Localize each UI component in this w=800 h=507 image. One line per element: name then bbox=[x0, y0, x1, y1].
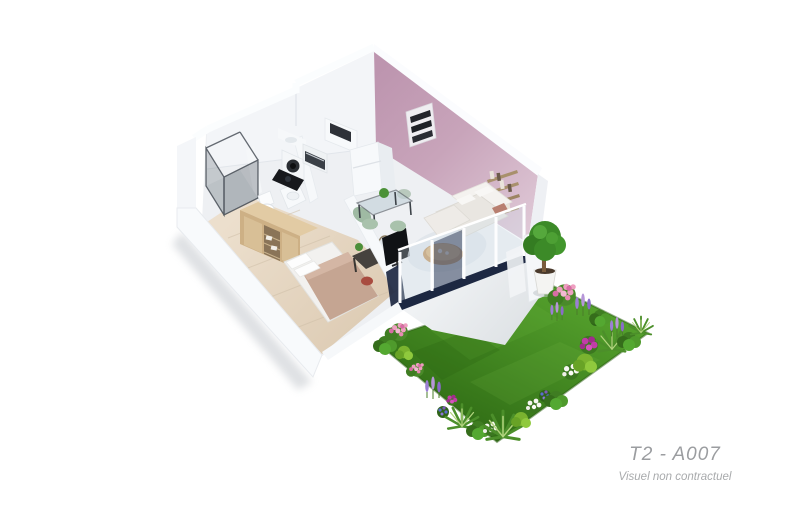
fridge bbox=[350, 142, 396, 196]
caption-disclaimer: Visuel non contractuel bbox=[575, 470, 775, 484]
caption: T2 - A007 Visuel non contractuel bbox=[575, 443, 775, 484]
kitchen-sink bbox=[285, 137, 297, 143]
caption-unit-label: T2 - A007 bbox=[575, 443, 775, 467]
left-outer-wall bbox=[177, 137, 196, 214]
floor-plan-render bbox=[0, 0, 800, 507]
table-plant bbox=[379, 188, 389, 198]
desk-plant bbox=[355, 243, 363, 251]
dining-chair bbox=[362, 219, 378, 230]
dining-chair bbox=[390, 221, 406, 232]
stool bbox=[361, 277, 373, 286]
